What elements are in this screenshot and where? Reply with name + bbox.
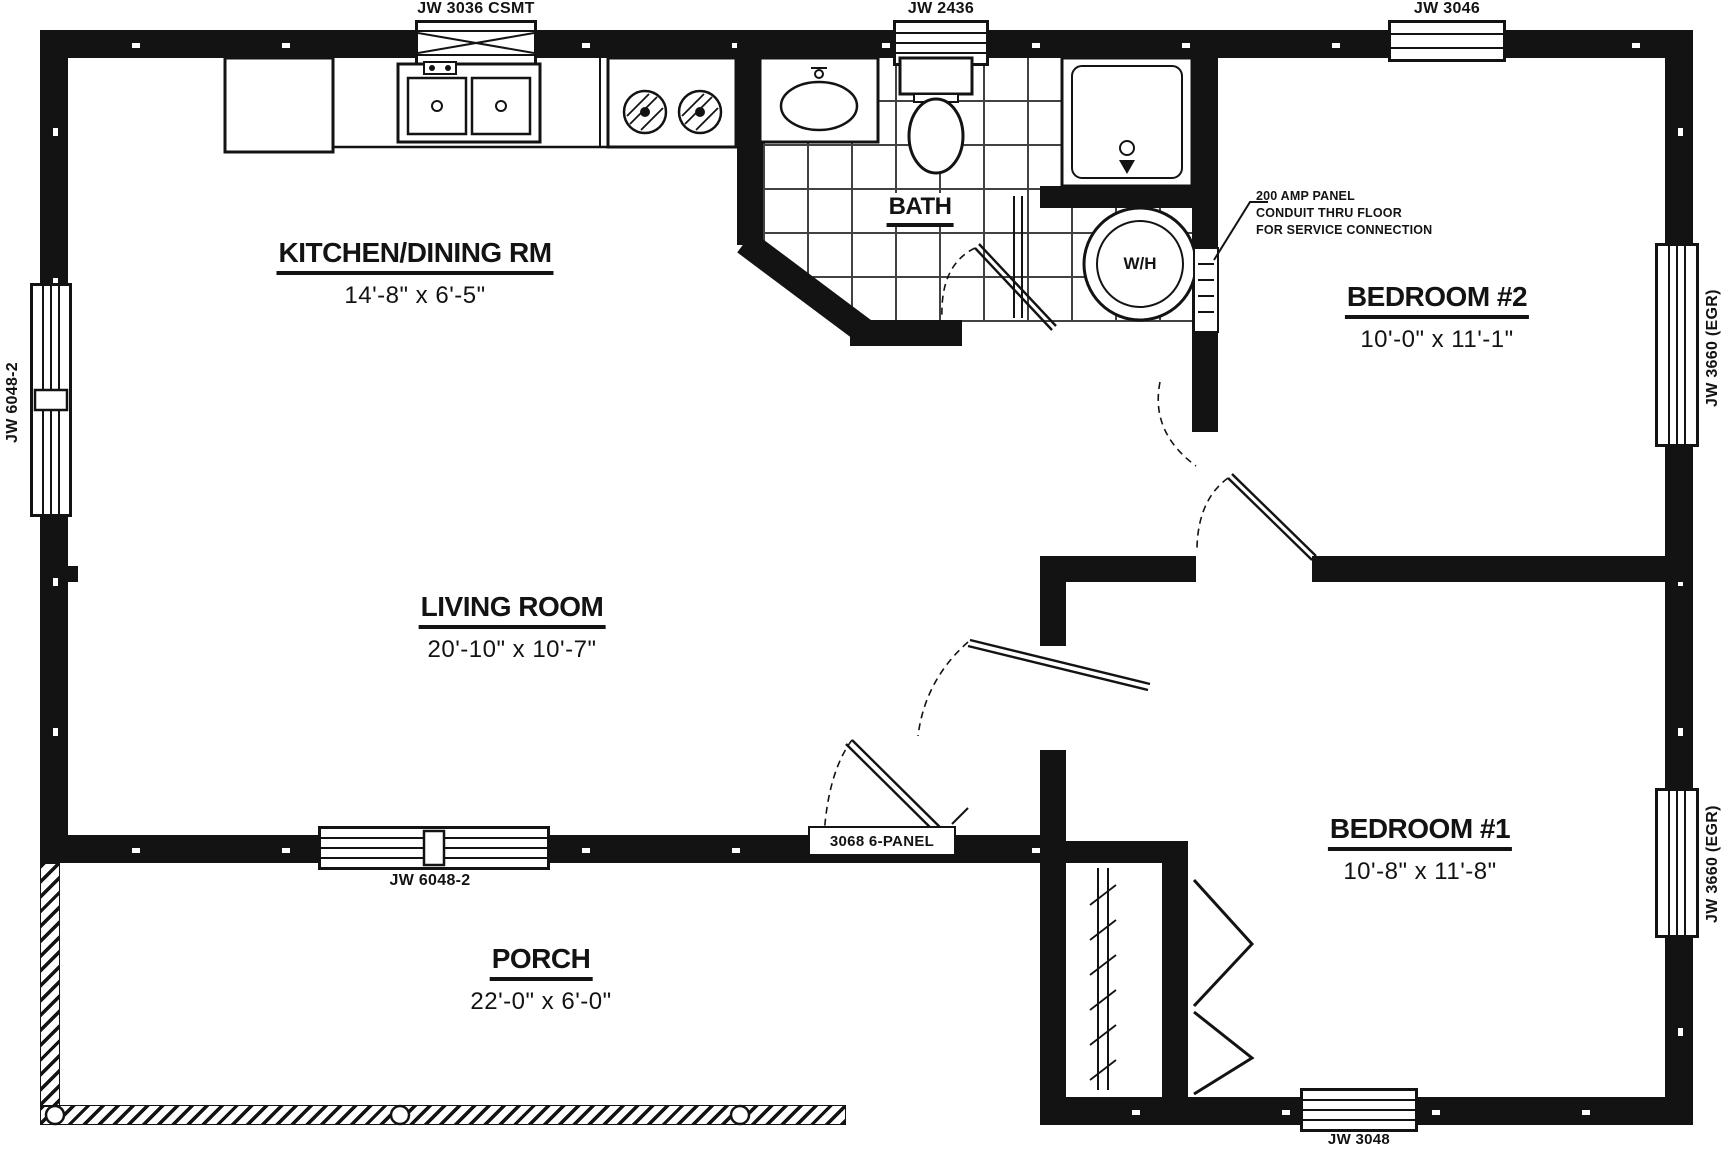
bedroom2-label: BEDROOM #2 — [1345, 281, 1529, 319]
porch-door-label: 3068 6-PANEL — [808, 826, 956, 856]
annotation-line-2: CONDUIT THRU FLOOR — [1256, 205, 1432, 222]
window-top-middle — [893, 20, 989, 66]
porch-edge-bottom — [40, 1105, 846, 1125]
window-label-top-right: JW 3046 — [1367, 0, 1527, 18]
window-top-right — [1388, 20, 1506, 62]
annotation-line-1: 200 AMP PANEL — [1256, 188, 1432, 205]
porch-edge-left — [40, 863, 60, 1107]
wall-bath-right — [1192, 30, 1218, 432]
porch-label: PORCH — [490, 943, 593, 981]
electrical-annotation: 200 AMP PANEL CONDUIT THRU FLOOR FOR SER… — [1256, 188, 1432, 239]
porch-dims: 22'-0" x 6'-0" — [470, 988, 611, 1016]
bedroom1-label: BEDROOM #1 — [1328, 813, 1512, 851]
hall-door-icon — [918, 640, 1150, 736]
wall-bath-bottom — [850, 320, 962, 346]
bath-label: BATH — [887, 193, 954, 227]
wall-hall-upper — [1040, 556, 1066, 646]
closet-door-chevrons-icon — [1194, 880, 1252, 1094]
wall-bedroom2-bottom-right — [1312, 556, 1693, 582]
window-glazing-icon — [1658, 791, 1696, 935]
window-label-top-mid: JW 2436 — [861, 0, 1021, 18]
living-room-dims: 20'-10" x 10'-7" — [428, 636, 597, 664]
window-glazing-icon — [1303, 1091, 1415, 1129]
bedroom2-door-icon — [1158, 382, 1316, 560]
water-heater-label: W/H — [1123, 254, 1156, 274]
window-living-bottom — [318, 826, 550, 870]
window-top-left-casement — [415, 20, 537, 66]
kitchen-counter-icon — [333, 58, 737, 147]
closet-rod-icon — [1090, 868, 1116, 1090]
wall-shower-bottom — [1040, 186, 1192, 208]
window-bottom-right — [1300, 1088, 1418, 1132]
wall-left-notch — [68, 566, 78, 582]
window-glazing-icon — [418, 23, 534, 63]
kitchen-label: KITCHEN/DINING RM — [276, 237, 553, 275]
window-glazing-icon — [896, 23, 986, 63]
window-label-living-bottom: JW 6048-2 — [330, 872, 530, 890]
floor-plan: JW 3036 CSMT JW 2436 JW 3046 JW 6048-2 J… — [0, 0, 1729, 1150]
window-right-lower — [1655, 788, 1699, 938]
window-glazing-icon — [1391, 23, 1503, 59]
window-glazing-icon — [1658, 246, 1696, 444]
window-label-top-left: JW 3036 CSMT — [376, 0, 576, 18]
refrigerator-icon — [225, 58, 333, 152]
kitchen-sink-icon — [398, 62, 540, 142]
wall-bath-left — [737, 30, 763, 245]
window-left — [30, 283, 72, 517]
window-glazing-icon — [33, 286, 69, 514]
window-right-upper — [1655, 243, 1699, 447]
window-glazing-icon — [321, 829, 547, 867]
wall-hall-lower — [1040, 750, 1066, 1097]
kitchen-dims: 14'-8" x 6'-5" — [344, 282, 485, 310]
bedroom1-dims: 10'-8" x 11'-8" — [1343, 858, 1496, 886]
wall-closet-right — [1162, 841, 1188, 1097]
annotation-line-3: FOR SERVICE CONNECTION — [1256, 222, 1432, 239]
window-label-right-upper: JW 3660 (EGR) — [1702, 260, 1724, 436]
window-label-right-lower: JW 3660 (EGR) — [1702, 776, 1724, 952]
range-cooktop-icon — [608, 58, 736, 147]
window-label-left: JW 6048-2 — [2, 318, 24, 488]
window-label-bottom-right: JW 3048 — [1279, 1131, 1439, 1148]
bedroom2-dims: 10'-0" x 11'-1" — [1360, 326, 1513, 354]
living-room-label: LIVING ROOM — [419, 591, 606, 629]
